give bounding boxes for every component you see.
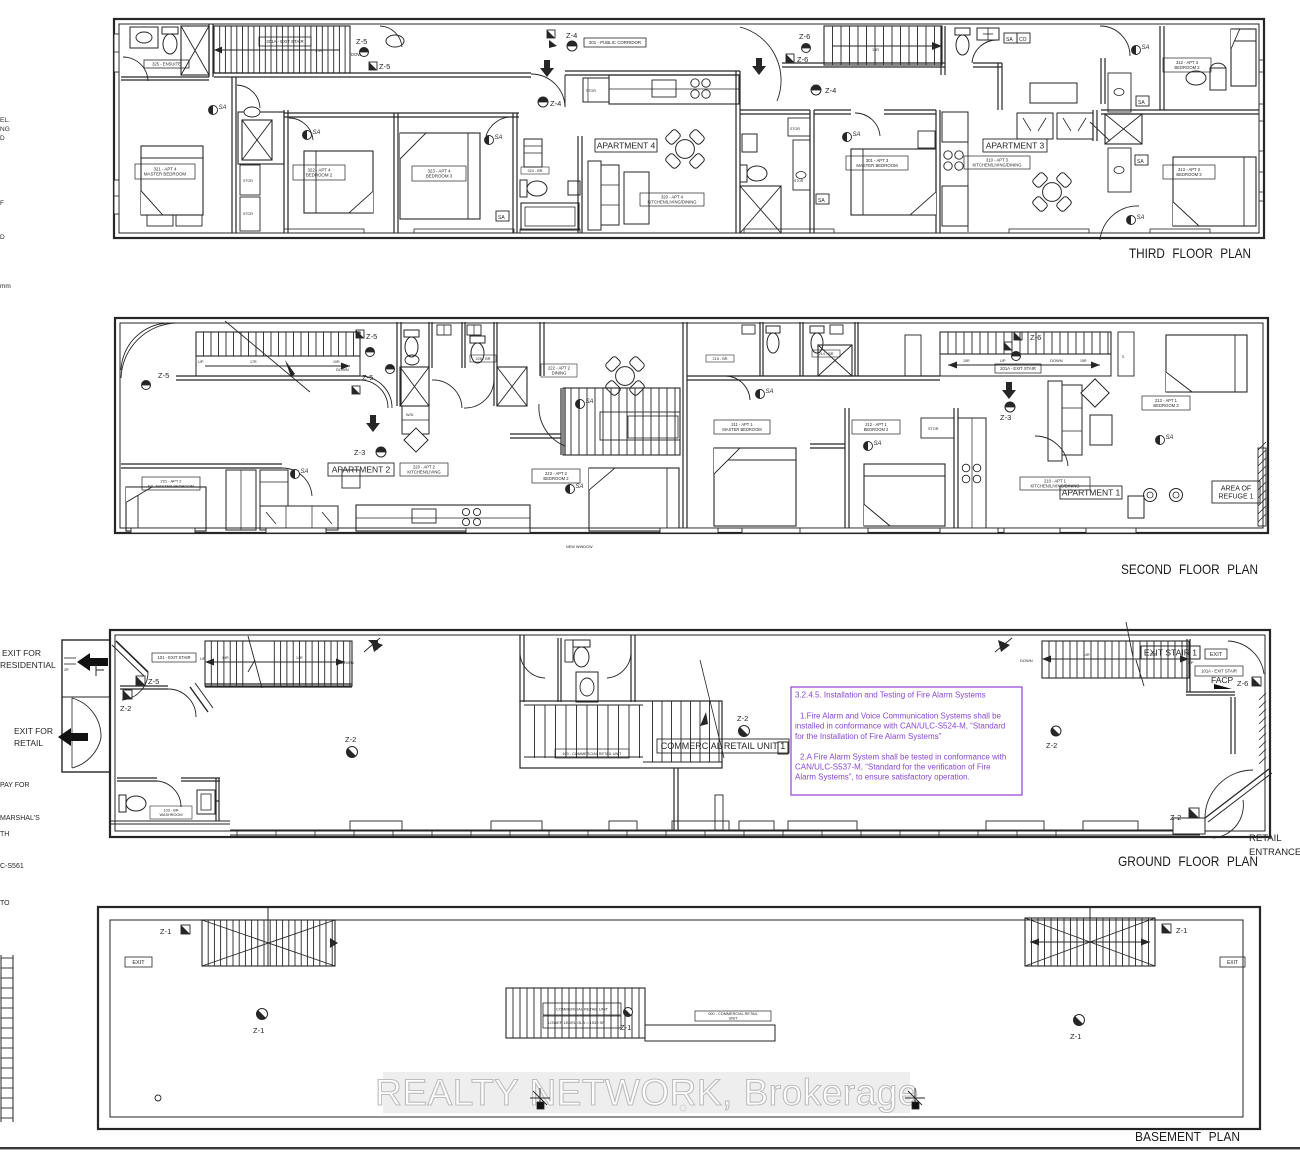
svg-text:STOR: STOR [790, 127, 800, 131]
svg-text:COMMERCIAL RETAIL UNIT: COMMERCIAL RETAIL UNIT [556, 1006, 609, 1011]
svg-text:EXIT FOR: EXIT FOR [2, 648, 41, 658]
svg-text:SA: SA [498, 215, 505, 221]
svg-text:THIRD FLOOR PLAN: THIRD FLOOR PLAN [1129, 245, 1251, 261]
svg-text:APARTMENT 1: APARTMENT 1 [1062, 488, 1121, 498]
svg-text:SA: SA [1142, 45, 1150, 51]
svg-text:GROUND FLOOR PLAN: GROUND FLOOR PLAN [1118, 853, 1258, 869]
svg-text:STOR: STOR [243, 212, 253, 216]
svg-text:Z-6: Z-6 [1030, 333, 1041, 342]
svg-text:SA: SA [1138, 100, 1145, 106]
svg-text:1.Fire Alarm and Voice Communi: 1.Fire Alarm and Voice Communication Sys… [800, 712, 1002, 721]
svg-text:SA: SA [495, 135, 503, 141]
svg-text:SA: SA [818, 198, 825, 204]
svg-text:15R: 15R [872, 48, 879, 52]
svg-text:DOWN: DOWN [336, 367, 349, 372]
svg-text:SA: SA [219, 105, 227, 111]
svg-text:BEDROOM 2: BEDROOM 2 [1174, 65, 1200, 70]
svg-text:SA: SA [1137, 215, 1145, 221]
svg-text:103 - BR: 103 - BR [164, 808, 179, 812]
svg-text:325 - ENSUITE: 325 - ENSUITE [152, 62, 181, 67]
svg-text:301A - EXIT STAIR: 301A - EXIT STAIR [266, 39, 303, 44]
svg-text:BEDROOM 3: BEDROOM 3 [1153, 403, 1179, 408]
svg-text:REALTY NETWORK, Brokerage: REALTY NETWORK, Brokerage [375, 1072, 919, 1113]
svg-text:STOR: STOR [794, 179, 804, 183]
svg-text:Z-6: Z-6 [797, 55, 808, 64]
svg-text:DOWN: DOWN [1050, 358, 1063, 363]
svg-text:WASHROOM: WASHROOM [159, 813, 182, 817]
svg-text:F: F [0, 200, 4, 207]
svg-text:323 - APT 4: 323 - APT 4 [427, 168, 451, 173]
svg-text:KITCHEN/LIVING: KITCHEN/LIVING [407, 470, 440, 475]
svg-text:UP: UP [1000, 358, 1006, 363]
svg-text:W/D: W/D [406, 413, 414, 417]
svg-text:C-S561: C-S561 [0, 863, 24, 870]
svg-text:215 - BR: 215 - BR [713, 357, 728, 361]
svg-text:15R: 15R [963, 359, 970, 363]
svg-text:EL.: EL. [0, 117, 10, 124]
svg-text:APARTMENT 4: APARTMENT 4 [597, 141, 656, 151]
svg-text:301 - APT 3: 301 - APT 3 [866, 158, 889, 163]
svg-text:Z-6: Z-6 [1237, 679, 1248, 688]
svg-text:NEW WINDOW: NEW WINDOW [566, 545, 593, 549]
svg-text:Z-5: Z-5 [148, 677, 159, 686]
svg-text:SA: SA [766, 389, 774, 395]
svg-text:RETAIL: RETAIL [1249, 833, 1282, 844]
svg-text:TO: TO [0, 900, 10, 907]
svg-text:STOR: STOR [928, 427, 939, 431]
svg-text:BEDROOM 2: BEDROOM 2 [543, 476, 569, 481]
svg-text:Z-3: Z-3 [1000, 413, 1011, 422]
svg-text:3.2.4.5. Installation and Test: 3.2.4.5. Installation and Testing of Fir… [795, 691, 986, 700]
svg-text:SA: SA [1166, 435, 1174, 441]
svg-text:BASEMENT PLAN: BASEMENT PLAN [1135, 1129, 1240, 1144]
svg-text:REFUGE 1: REFUGE 1 [1218, 493, 1253, 500]
svg-text:BEDROOM 3: BEDROOM 3 [426, 174, 453, 179]
svg-text:Z-1: Z-1 [1070, 1032, 1081, 1041]
svg-text:SECOND FLOOR PLAN: SECOND FLOOR PLAN [1121, 561, 1258, 577]
svg-text:UNIT: UNIT [729, 1017, 739, 1021]
svg-text:SA: SA [301, 469, 309, 475]
svg-text:UP: UP [198, 359, 204, 364]
svg-text:MASTER BEDROOM: MASTER BEDROOM [144, 172, 187, 177]
svg-text:EXIT FOR: EXIT FOR [14, 726, 53, 736]
svg-text:SA: SA [1006, 37, 1013, 43]
svg-text:UP: UP [1188, 660, 1194, 665]
svg-text:15R: 15R [1080, 359, 1087, 363]
svg-text:COMMERCIAL RETAIL UNIT 1: COMMERCIAL RETAIL UNIT 1 [661, 741, 786, 751]
svg-text:EX. MASTER BEDROOM: EX. MASTER BEDROOM [148, 483, 194, 488]
svg-text:Z-5: Z-5 [356, 37, 367, 46]
svg-text:10R: 10R [333, 360, 340, 364]
svg-text:SA: SA [874, 441, 882, 447]
svg-text:Z-2: Z-2 [1170, 813, 1181, 822]
svg-text:Z-2: Z-2 [737, 714, 748, 723]
svg-text:225 - BR: 225 - BR [476, 357, 491, 361]
svg-text:Z-2: Z-2 [120, 704, 131, 713]
svg-text:TH: TH [0, 831, 9, 838]
svg-text:DOWN: DOWN [341, 660, 354, 665]
svg-text:UP: UP [200, 656, 206, 661]
svg-text:14R: 14R [222, 656, 229, 660]
svg-text:324 - BR: 324 - BR [528, 169, 543, 173]
svg-text:for the Installation of Fire A: for the Installation of Fire Alarm Syste… [795, 732, 942, 741]
svg-text:PAY FOR: PAY FOR [0, 782, 30, 789]
svg-text:EXIT: EXIT [1210, 652, 1223, 658]
svg-text:AREA OF: AREA OF [1221, 485, 1251, 492]
svg-text:SA: SA [576, 484, 584, 490]
svg-text:STOR: STOR [243, 179, 253, 183]
svg-text:CAN/ULC-S537-M, “Standard for: CAN/ULC-S537-M, “Standard for the verifi… [795, 763, 991, 772]
svg-text:301 - PUBLIC CORRIDOR: 301 - PUBLIC CORRIDOR [589, 40, 641, 45]
svg-text:APARTMENT 3: APARTMENT 3 [986, 141, 1045, 151]
svg-text:BEDROOM 2: BEDROOM 2 [306, 173, 333, 178]
svg-text:Z-1: Z-1 [160, 927, 171, 936]
svg-text:SA: SA [586, 399, 594, 405]
svg-text:DOWN: DOWN [1020, 658, 1033, 663]
svg-text:Z-5: Z-5 [366, 332, 377, 341]
svg-text:STOR: STOR [586, 89, 596, 93]
svg-text:SA: SA [1137, 159, 1144, 165]
svg-text:Z-1: Z-1 [1176, 926, 1187, 935]
svg-text:Z-5: Z-5 [362, 373, 373, 382]
svg-text:KITCHEN/LIVING/DINING: KITCHEN/LIVING/DINING [647, 200, 696, 205]
svg-text:101A - EXIT STAIR: 101A - EXIT STAIR [1201, 669, 1237, 674]
svg-text:000 - COMMERCIAL RETAIL: 000 - COMMERCIAL RETAIL [708, 1012, 757, 1016]
svg-text:APARTMENT 2: APARTMENT 2 [332, 465, 391, 475]
svg-text:Z-4: Z-4 [550, 99, 561, 108]
svg-text:RETAIL: RETAIL [14, 738, 43, 748]
svg-text:Z-5: Z-5 [379, 62, 390, 71]
svg-text:201A - EXIT STAIR: 201A - EXIT STAIR [1000, 366, 1036, 371]
svg-text:LOWER LEVEL GLA = 1530 SF: LOWER LEVEL GLA = 1530 SF [548, 1020, 605, 1025]
svg-text:D: D [0, 135, 5, 142]
svg-text:321 - APT 4: 321 - APT 4 [153, 166, 177, 171]
svg-text:KITCHEN/LIVING/DINING: KITCHEN/LIVING/DINING [972, 163, 1021, 168]
svg-text:14R: 14R [1083, 653, 1090, 657]
svg-text:EXIT: EXIT [1227, 960, 1238, 966]
svg-text:SA: SA [853, 132, 861, 138]
svg-text:D: D [0, 234, 5, 241]
svg-text:Z-2: Z-2 [1046, 741, 1057, 750]
svg-text:BEDROOM 2: BEDROOM 2 [864, 427, 889, 432]
svg-text:214 - BR: 214 - BR [819, 352, 834, 356]
svg-text:17R: 17R [250, 360, 257, 364]
svg-text:Z-4: Z-4 [825, 86, 836, 95]
svg-text:100 - COMMERCIAL RETAIL UNIT: 100 - COMMERCIAL RETAIL UNIT [562, 752, 622, 756]
svg-text:2.A Fire Alarm System shall be: 2.A Fire Alarm System shall be tested in… [800, 752, 1006, 761]
svg-text:Z-3: Z-3 [354, 448, 365, 457]
svg-text:FACP: FACP [1211, 675, 1234, 685]
svg-text:installed in conformance with: installed in conformance with CAN/ULC-S5… [795, 722, 1005, 731]
svg-text:Alarm Systems”, to ensure sati: Alarm Systems”, to ensure satisfactory o… [795, 773, 970, 782]
svg-text:17R: 17R [315, 49, 322, 53]
svg-text:RESIDENTIAL: RESIDENTIAL [0, 660, 56, 670]
svg-text:MASTER BEDROOM: MASTER BEDROOM [722, 427, 762, 432]
svg-text:EXIT STAIR 1: EXIT STAIR 1 [1144, 648, 1197, 658]
svg-text:Z-4: Z-4 [566, 31, 577, 40]
svg-text:Z-5: Z-5 [158, 371, 169, 380]
svg-text:EXIT: EXIT [132, 960, 145, 966]
svg-text:MASTER BEDROOM: MASTER BEDROOM [856, 163, 898, 168]
svg-text:Z-1: Z-1 [620, 1023, 631, 1032]
svg-text:2R: 2R [64, 668, 69, 672]
svg-text:NG: NG [0, 126, 10, 133]
svg-text:Z-6: Z-6 [799, 32, 810, 41]
svg-text:MARSHAL'S: MARSHAL'S [0, 815, 40, 822]
svg-text:101 - EXIT STAIR: 101 - EXIT STAIR [157, 655, 190, 660]
svg-text:14R: 14R [296, 656, 303, 660]
svg-text:CO: CO [1019, 37, 1027, 43]
svg-text:DINING: DINING [552, 371, 567, 376]
svg-text:mm: mm [0, 283, 11, 290]
svg-text:BEDROOM 3: BEDROOM 3 [1176, 172, 1202, 177]
svg-text:322 - APT 4: 322 - APT 4 [307, 167, 331, 172]
svg-text:Z-2: Z-2 [345, 735, 356, 744]
svg-text:Z-1: Z-1 [253, 1026, 264, 1035]
svg-text:SA: SA [313, 130, 321, 136]
